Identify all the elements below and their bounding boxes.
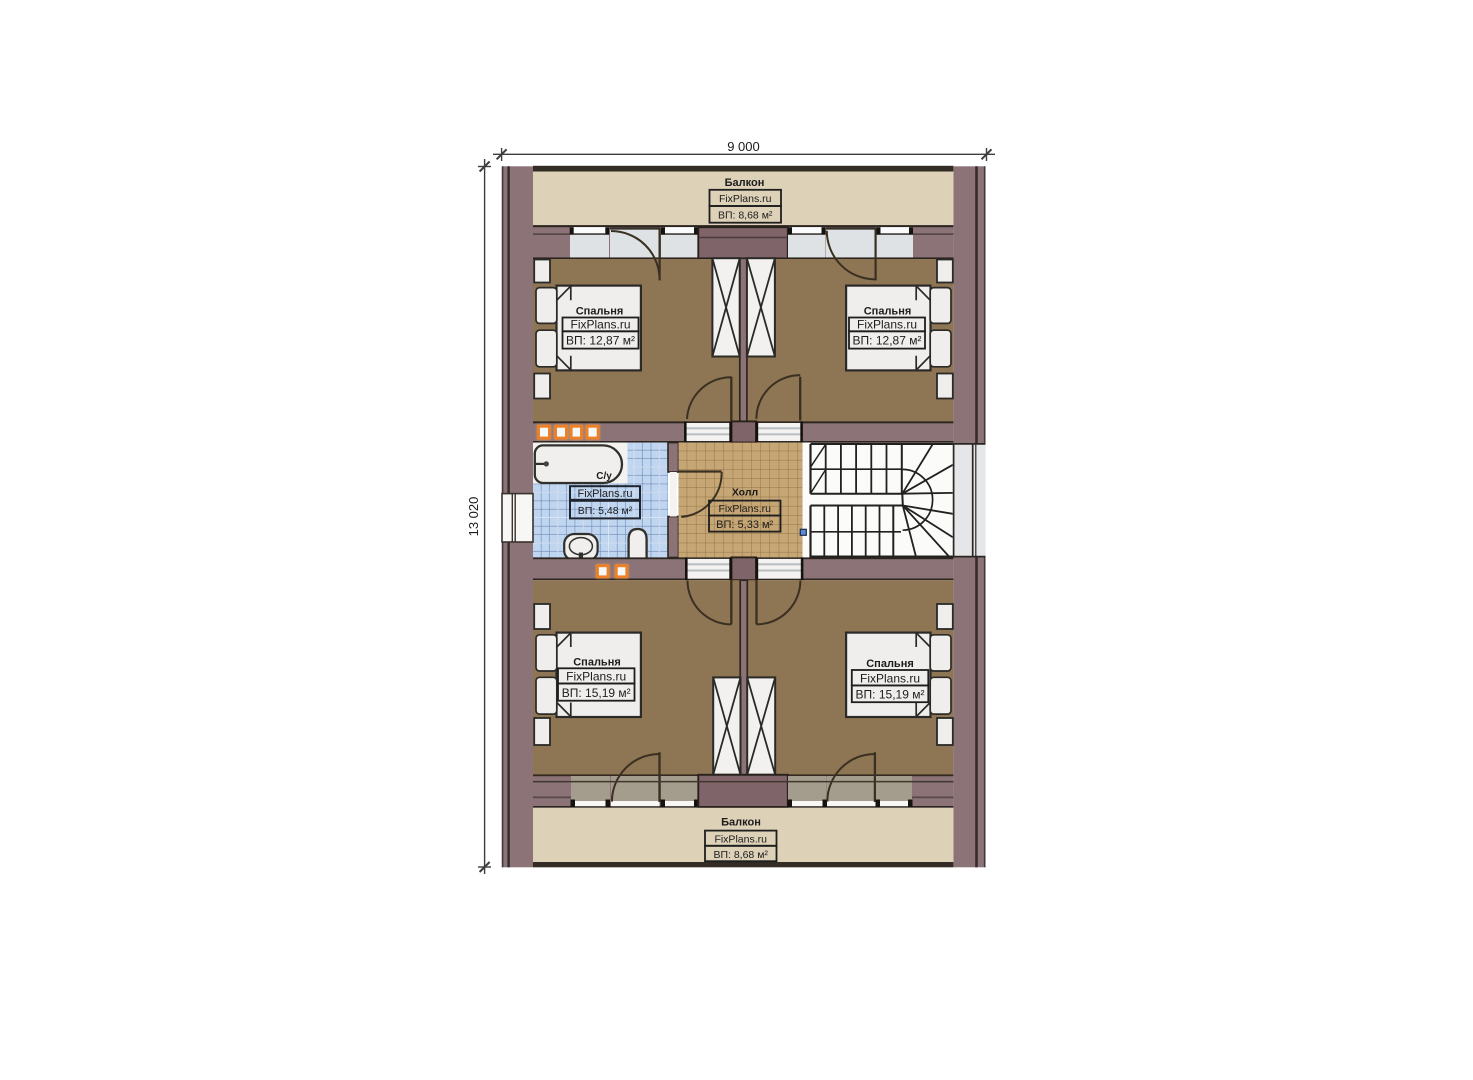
svg-text:FixPlans.ru: FixPlans.ru: [860, 671, 920, 685]
svg-text:Холл: Холл: [732, 486, 758, 498]
svg-text:ВП: 15,19 м²: ВП: 15,19 м²: [562, 686, 631, 700]
svg-text:FixPlans.ru: FixPlans.ru: [566, 670, 626, 684]
svg-text:FixPlans.ru: FixPlans.ru: [718, 503, 771, 515]
svg-text:ВП: 12,87 м²: ВП: 12,87 м²: [853, 334, 922, 348]
svg-text:ВП: 5,48 м²: ВП: 5,48 м²: [578, 505, 633, 517]
svg-text:Балкон: Балкон: [725, 177, 765, 189]
svg-text:Спальня: Спальня: [866, 658, 914, 670]
svg-text:ВП: 12,87 м²: ВП: 12,87 м²: [566, 334, 635, 348]
svg-text:FixPlans.ru: FixPlans.ru: [857, 318, 917, 332]
svg-text:13 020: 13 020: [466, 497, 481, 537]
svg-text:Спальня: Спальня: [576, 306, 624, 318]
svg-text:Спальня: Спальня: [573, 657, 621, 669]
svg-text:ВП: 15,19 м²: ВП: 15,19 м²: [856, 688, 925, 702]
svg-text:FixPlans.ru: FixPlans.ru: [719, 193, 772, 205]
svg-text:ВП: 5,33 м²: ВП: 5,33 м²: [716, 519, 773, 531]
svg-text:ВП: 8,68 м²: ВП: 8,68 м²: [718, 210, 773, 222]
svg-text:FixPlans.ru: FixPlans.ru: [570, 318, 630, 332]
svg-text:С/у: С/у: [596, 471, 612, 482]
svg-text:FixPlans.ru: FixPlans.ru: [577, 488, 632, 500]
svg-text:ВП: 8,68 м²: ВП: 8,68 м²: [713, 849, 768, 861]
svg-text:Балкон: Балкон: [721, 817, 761, 829]
svg-text:9 000: 9 000: [727, 139, 760, 154]
svg-text:Спальня: Спальня: [864, 306, 912, 318]
svg-text:FixPlans.ru: FixPlans.ru: [714, 833, 767, 845]
